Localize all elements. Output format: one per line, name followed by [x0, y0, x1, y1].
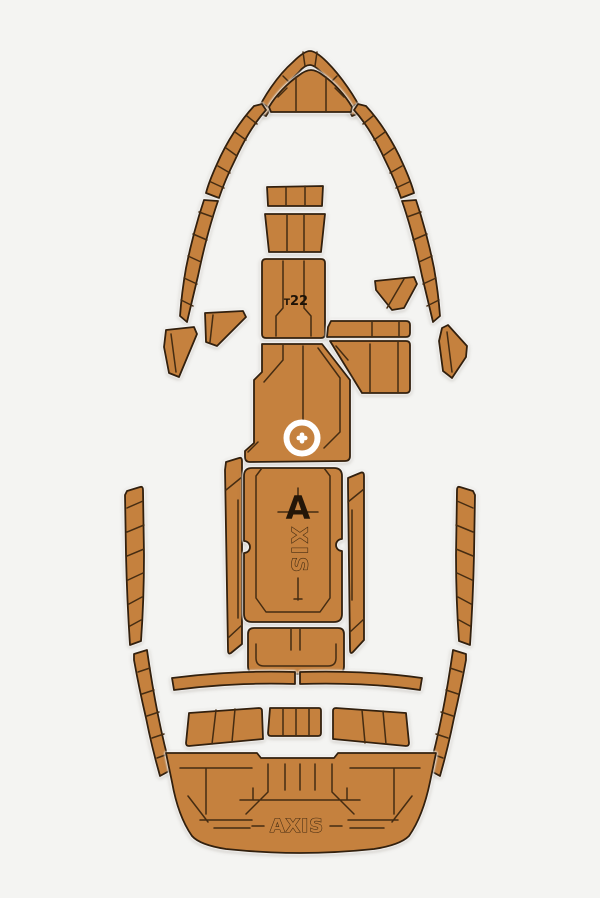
bow-corner-pad-left-2	[164, 327, 197, 377]
gunwale-strip-left-upper	[125, 487, 144, 645]
pylon-plug-horizontal	[297, 436, 308, 441]
bench-trim-strip-right	[300, 672, 422, 690]
model-number: 22	[290, 294, 308, 309]
cockpit-section	[245, 321, 410, 462]
cockpit-floor-pad	[245, 344, 350, 462]
seat-pad-left	[186, 708, 263, 746]
walkway-section: T22	[262, 186, 325, 338]
seat-pad-center	[268, 708, 321, 736]
stern-section: AXIS	[134, 650, 466, 853]
deck-pad-kit-image: T22 A XIS	[0, 0, 600, 898]
center-logo-letter-a: A	[286, 489, 311, 527]
stern-brand-logo: AXIS	[270, 815, 324, 837]
bow-corner-pad-right-2	[439, 325, 467, 378]
walkway-step-pad	[267, 186, 323, 206]
center-floor-lower-pad	[248, 628, 344, 674]
center-logo-letters-xis: XIS	[287, 527, 311, 575]
boat-deck-pad-layout: T22 A XIS	[0, 0, 600, 898]
mid-section: A XIS	[125, 458, 475, 674]
walkway-upper-pad	[265, 214, 325, 252]
bench-trim-strip-left	[172, 672, 295, 690]
gunwale-strip-left-lower	[134, 650, 171, 776]
side-strip-left-inner	[225, 458, 242, 654]
gunwale-strip-right-upper	[456, 487, 475, 645]
seat-base-top-strip	[327, 321, 410, 337]
seat-pad-right	[333, 708, 409, 746]
